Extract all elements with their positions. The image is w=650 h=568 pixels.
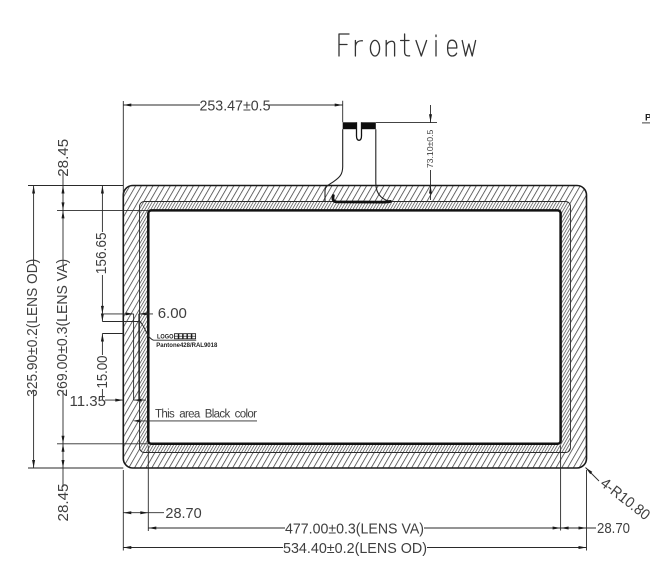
svg-text:269.00±0.3(LENS VA): 269.00±0.3(LENS VA)	[55, 259, 71, 397]
svg-text:477.00±0.3(LENS VA): 477.00±0.3(LENS VA)	[285, 520, 424, 537]
svg-text:6.00: 6.00	[158, 305, 187, 322]
svg-text:534.40±0.2(LENS OD): 534.40±0.2(LENS OD)	[283, 540, 427, 557]
svg-text:28.70: 28.70	[165, 505, 201, 522]
svg-text:P: P	[645, 113, 650, 124]
svg-text:28.70: 28.70	[597, 520, 630, 537]
svg-text:73.10±0.5: 73.10±0.5	[425, 129, 435, 168]
svg-text:28.45: 28.45	[56, 484, 72, 522]
svg-text:This area Black color: This area Black color	[155, 408, 257, 420]
svg-text:28.45: 28.45	[56, 139, 72, 177]
svg-text:11.35: 11.35	[70, 393, 107, 410]
svg-text:156.65: 156.65	[94, 232, 110, 274]
svg-text:LOGO: LOGO	[157, 334, 174, 341]
svg-text:325.90±0.2(LENS OD): 325.90±0.2(LENS OD)	[25, 259, 41, 397]
svg-text:15.00: 15.00	[95, 356, 111, 389]
svg-text:Pantone428/RAL9018: Pantone428/RAL9018	[156, 342, 218, 349]
svg-text:253.47±0.5: 253.47±0.5	[200, 98, 271, 115]
